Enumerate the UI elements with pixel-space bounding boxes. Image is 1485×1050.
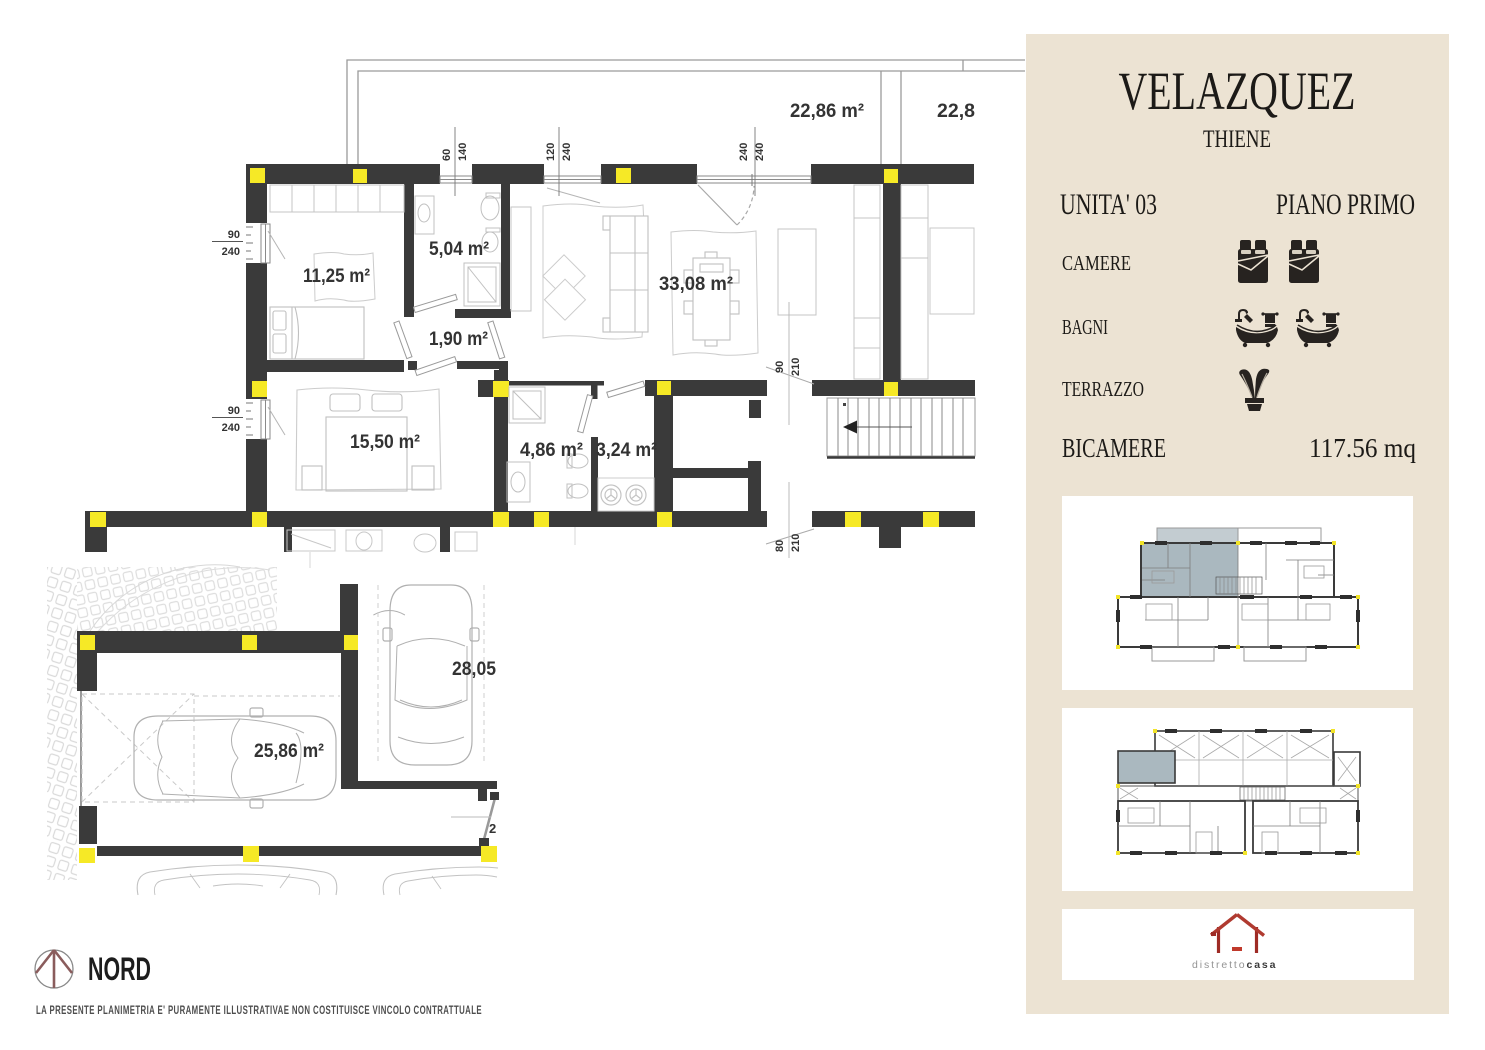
svg-text:210: 210: [790, 358, 802, 376]
svg-text:120: 120: [545, 143, 557, 161]
svg-text:11,25 m²: 11,25 m²: [303, 266, 370, 287]
svg-text:UNITA' 03: UNITA' 03: [1060, 188, 1157, 221]
svg-text:240: 240: [754, 143, 766, 161]
svg-text:22,86 m²: 22,86 m²: [790, 101, 864, 122]
svg-text:15,50 m²: 15,50 m²: [350, 432, 420, 453]
svg-text:3,24 m²: 3,24 m²: [596, 440, 657, 461]
svg-text:80: 80: [774, 540, 786, 552]
svg-text:NORD: NORD: [88, 951, 151, 987]
svg-text:240: 240: [222, 246, 240, 258]
svg-text:PIANO PRIMO: PIANO PRIMO: [1276, 188, 1415, 221]
svg-text:140: 140: [457, 143, 469, 161]
svg-text:CAMERE: CAMERE: [1062, 251, 1131, 275]
svg-text:90: 90: [228, 405, 240, 417]
svg-text:33,08 m²: 33,08 m²: [659, 274, 733, 295]
svg-text:BAGNI: BAGNI: [1062, 315, 1108, 339]
svg-text:1,90 m²: 1,90 m²: [429, 329, 488, 350]
svg-text:TERRAZZO: TERRAZZO: [1062, 377, 1144, 401]
svg-text:THIENE: THIENE: [1203, 126, 1271, 153]
svg-text:117.56 mq: 117.56 mq: [1309, 433, 1416, 463]
svg-text:LA PRESENTE PLANIMETRIA E' PUR: LA PRESENTE PLANIMETRIA E' PURAMENTE ILL…: [36, 1005, 482, 1017]
svg-text:distrettocasa: distrettocasa: [1192, 959, 1277, 971]
svg-text:22,8: 22,8: [937, 101, 975, 122]
svg-text:210: 210: [790, 534, 802, 552]
svg-text:5,04 m²: 5,04 m²: [429, 239, 489, 260]
svg-text:28,05: 28,05: [452, 659, 496, 680]
svg-text:240: 240: [738, 143, 750, 161]
svg-text:2: 2: [489, 821, 496, 836]
svg-text:4,86 m²: 4,86 m²: [520, 440, 583, 461]
svg-text:VELAZQUEZ: VELAZQUEZ: [1119, 61, 1356, 121]
svg-text:90: 90: [228, 229, 240, 241]
svg-text:60: 60: [441, 149, 453, 161]
svg-text:BICAMERE: BICAMERE: [1062, 433, 1166, 463]
svg-text:25,86 m²: 25,86 m²: [254, 741, 324, 762]
svg-text:240: 240: [222, 422, 240, 434]
svg-text:240: 240: [561, 143, 573, 161]
svg-text:90: 90: [774, 361, 786, 373]
